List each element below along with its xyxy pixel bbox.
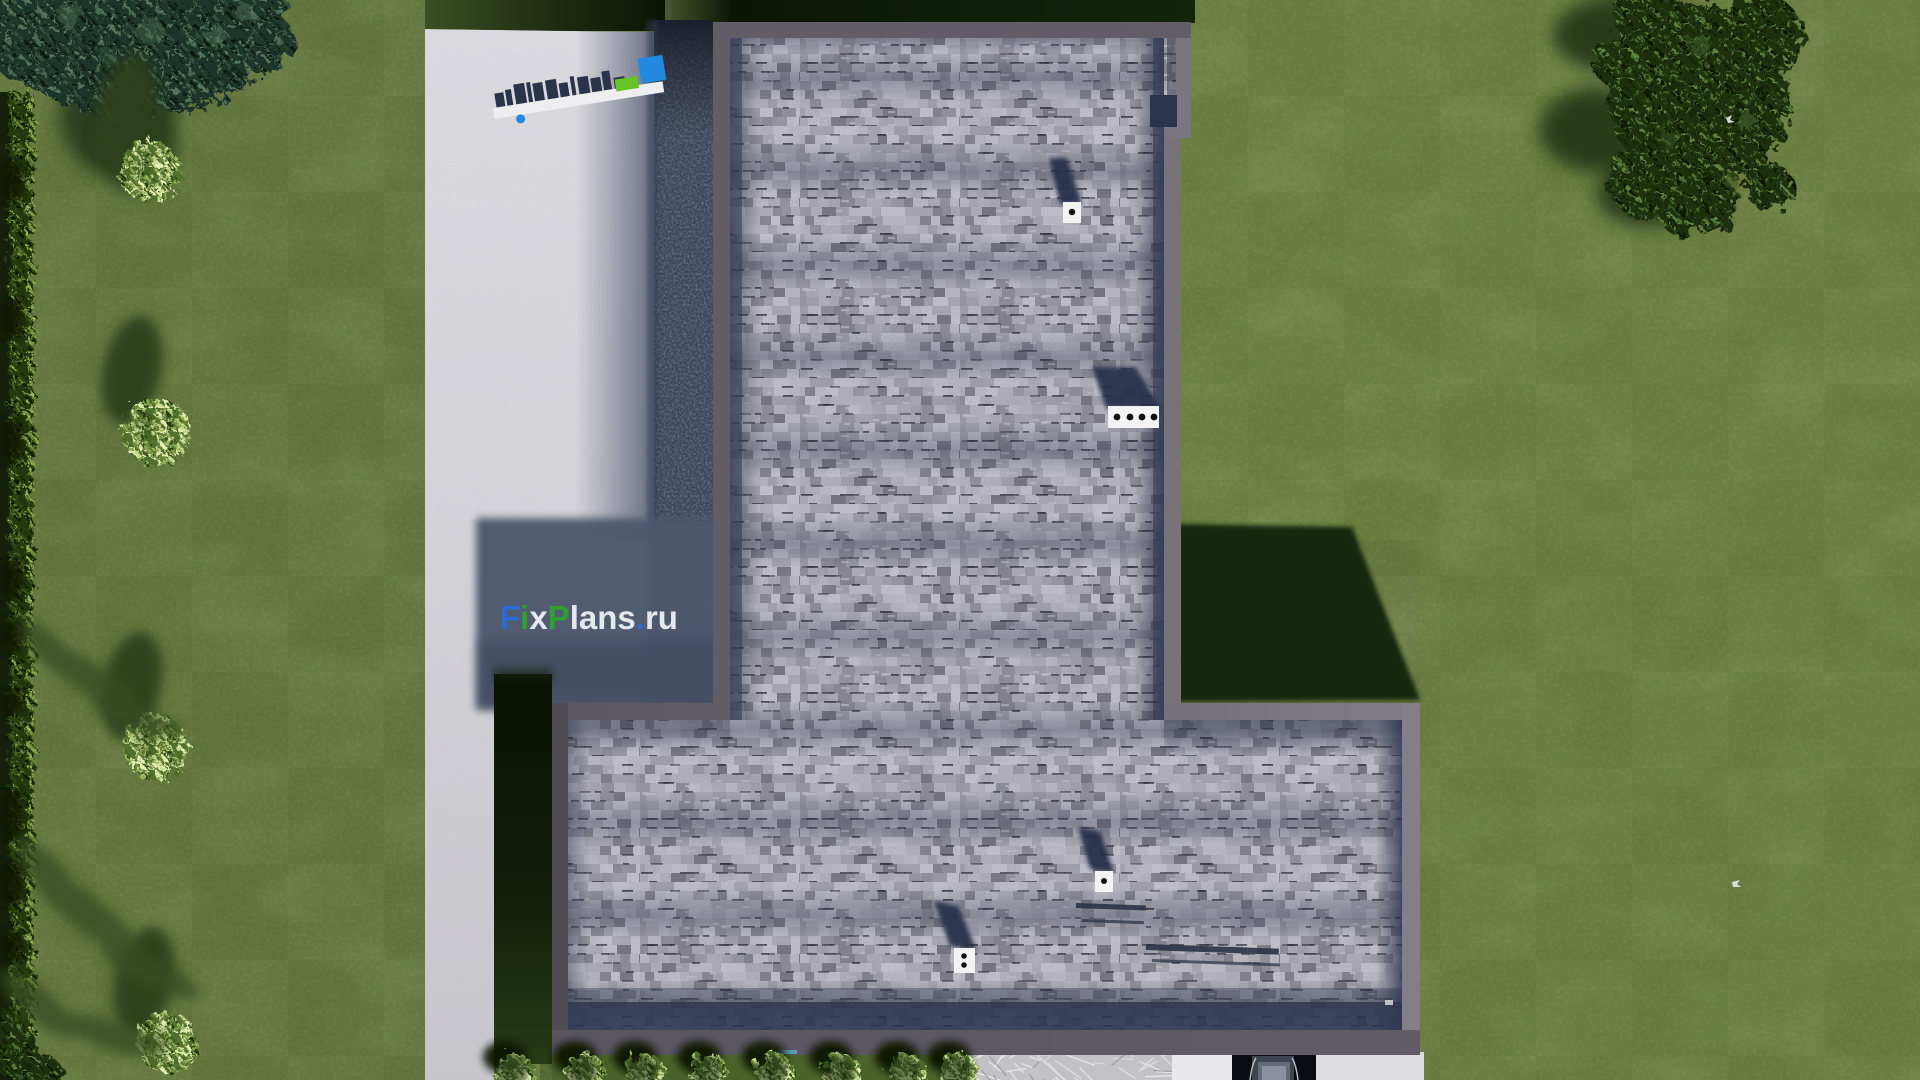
svg-text:FixPlans.ru: FixPlans.ru — [500, 599, 678, 636]
